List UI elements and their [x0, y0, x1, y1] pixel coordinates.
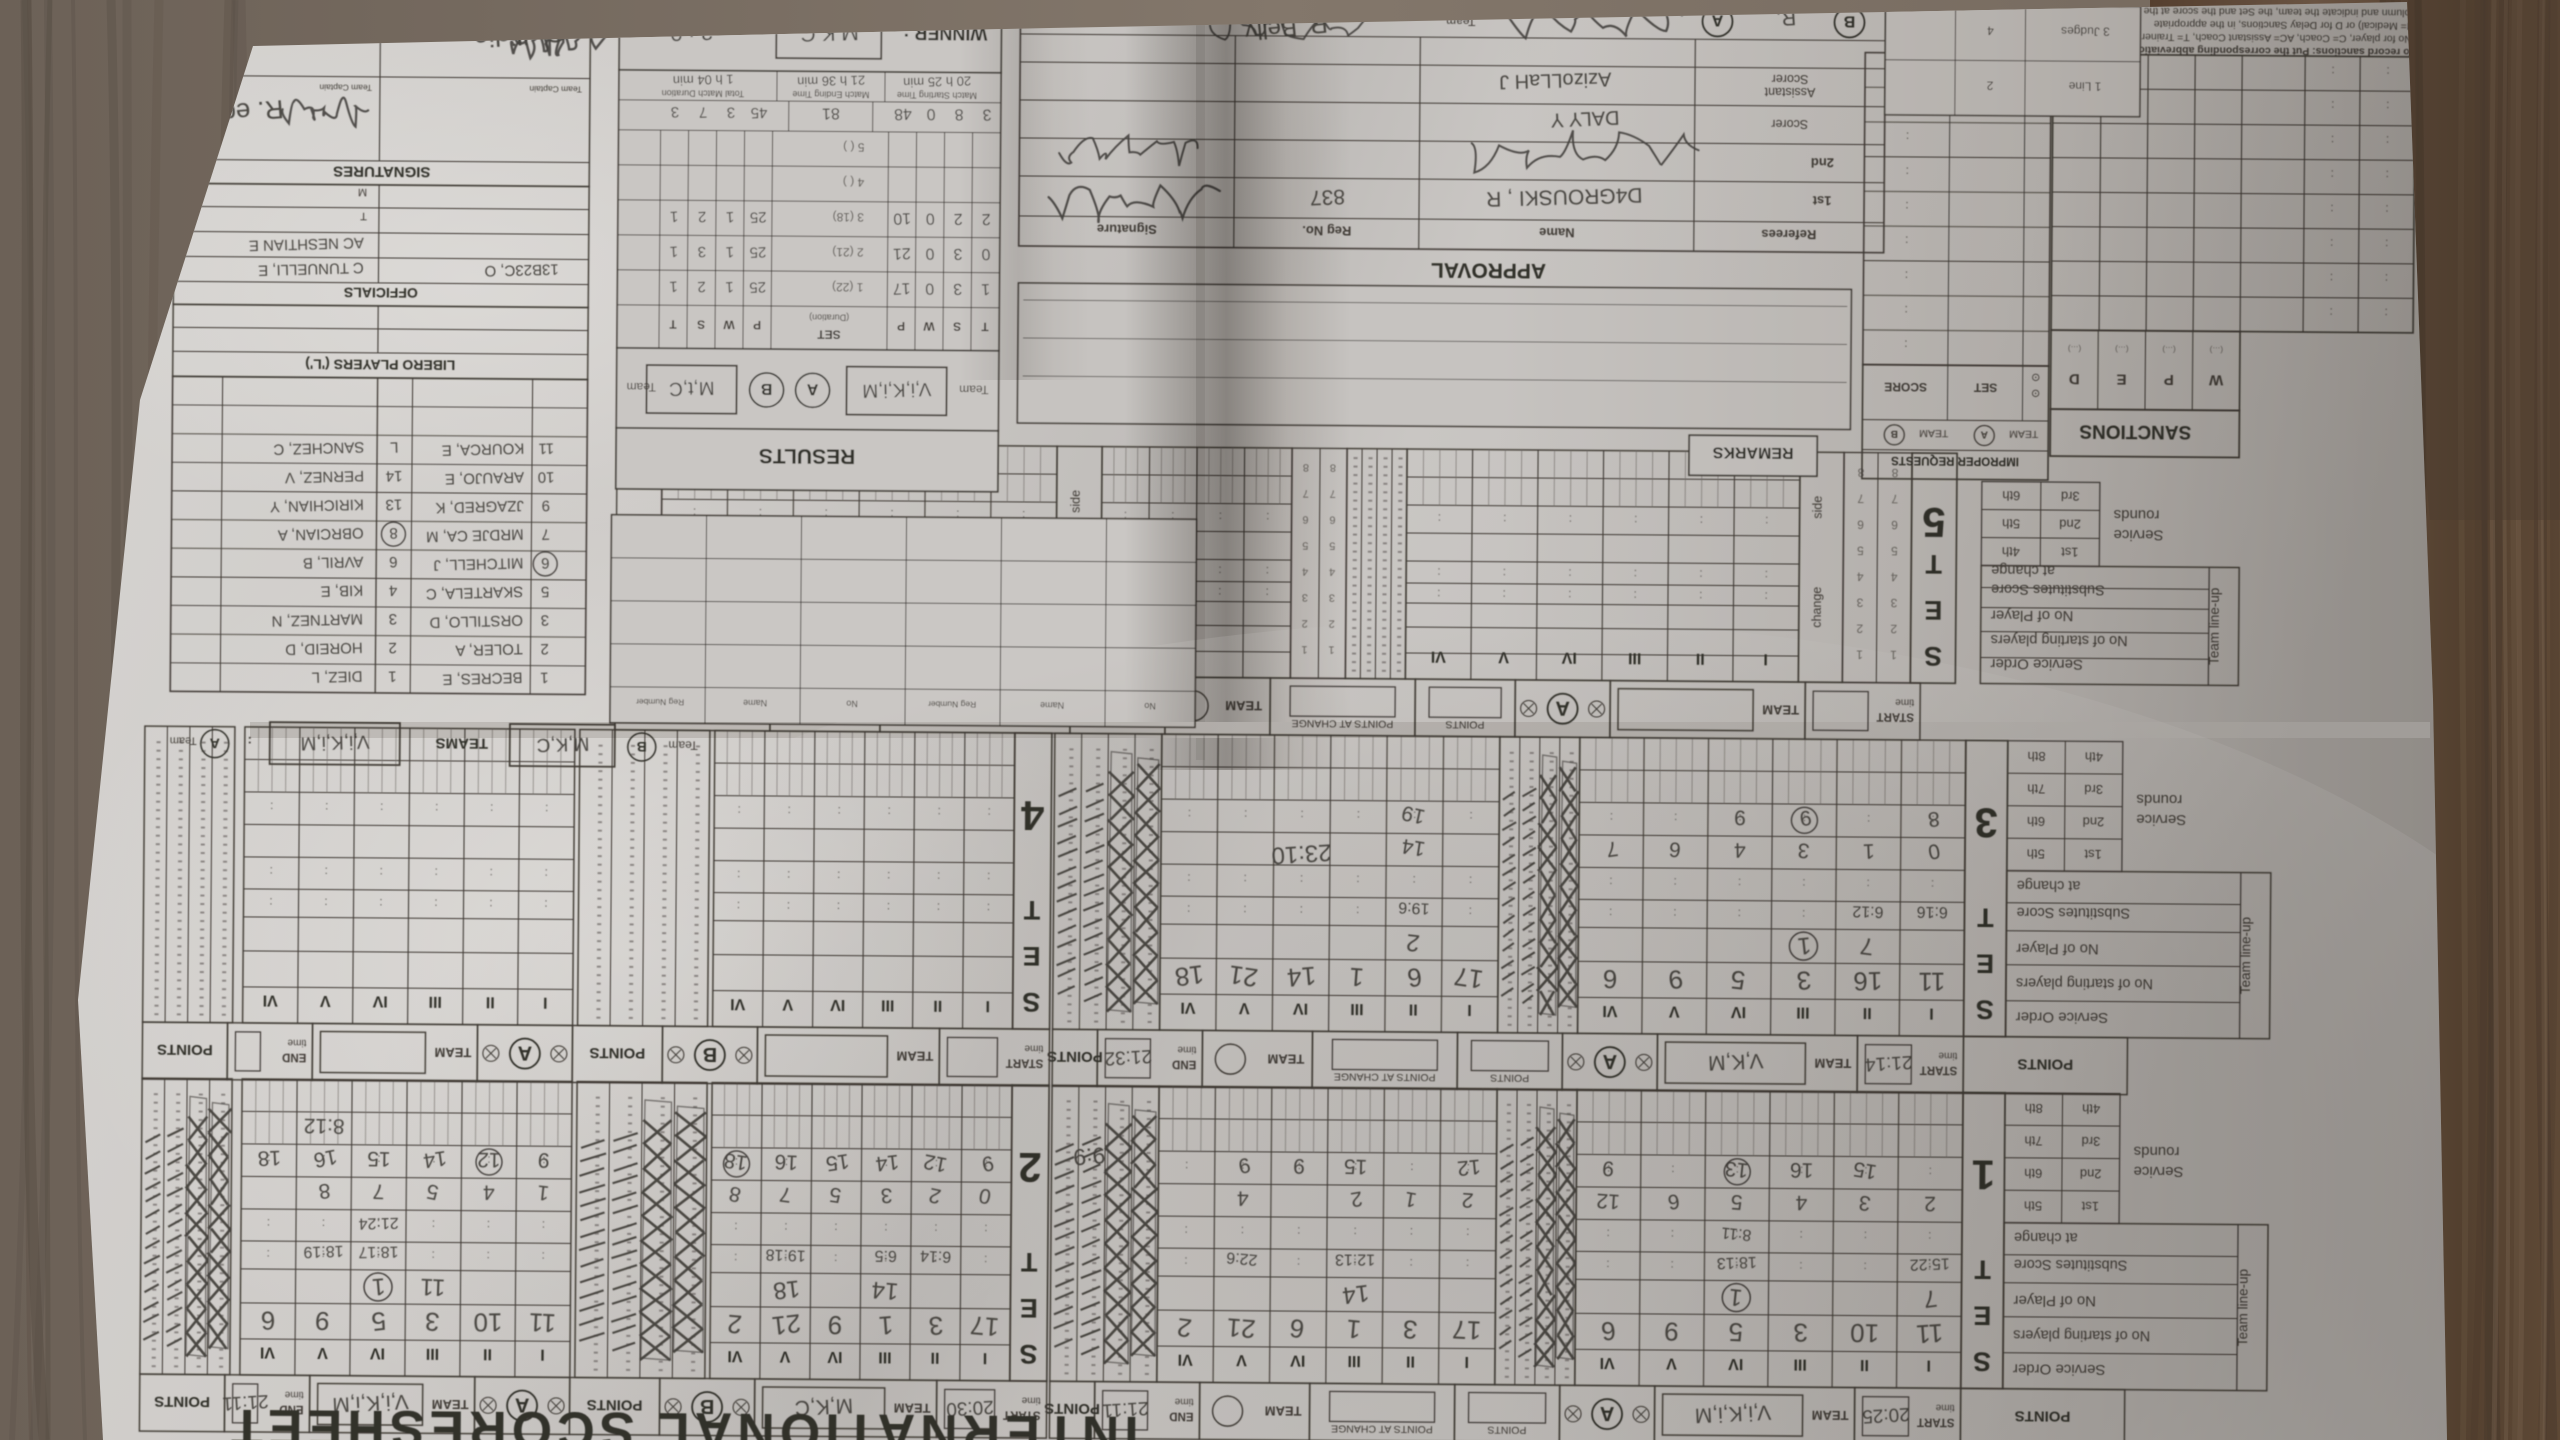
svg-text:5 ( ): 5 ( )	[843, 140, 864, 154]
svg-text:Team: Team	[959, 382, 988, 396]
svg-text:Match Ending Time: Match Ending Time	[792, 89, 869, 100]
svg-text:8: 8	[317, 1179, 331, 1203]
svg-text:T: T	[669, 317, 677, 331]
svg-text::: :	[267, 1247, 270, 1261]
svg-text:(Duration): (Duration)	[809, 312, 849, 322]
svg-text:Team Captain: Team Captain	[319, 82, 372, 92]
svg-text:18:19: 18:19	[303, 1242, 344, 1260]
svg-text:POINTS: POINTS	[154, 1393, 210, 1410]
svg-text::: :	[270, 864, 273, 878]
svg-text::: :	[489, 897, 492, 911]
svg-text::: :	[435, 801, 438, 815]
svg-text:BECRES, E: BECRES, E	[442, 669, 522, 688]
svg-text:B: B	[637, 739, 647, 755]
svg-text::: :	[325, 800, 328, 814]
svg-text:25: 25	[749, 278, 766, 296]
svg-text:4 ( ): 4 ( )	[843, 175, 864, 189]
svg-text:25: 25	[749, 208, 766, 226]
svg-text:1 h 04 min: 1 h 04 min	[673, 72, 734, 89]
svg-text:6: 6	[541, 554, 550, 571]
svg-text:P: P	[897, 319, 905, 333]
svg-text:1: 1	[669, 243, 678, 260]
svg-text::: :	[270, 799, 273, 813]
svg-text:IV: IV	[372, 992, 388, 1009]
svg-text:0: 0	[925, 280, 935, 297]
svg-text:3: 3	[670, 103, 679, 120]
svg-text:1: 1	[725, 243, 734, 260]
svg-text::: :	[379, 896, 382, 910]
svg-text:5: 5	[541, 583, 550, 600]
svg-text:Name: Name	[743, 698, 767, 708]
svg-text:7: 7	[698, 103, 707, 120]
svg-text::: :	[380, 865, 383, 879]
svg-text:8:12: 8:12	[303, 1114, 344, 1138]
svg-text:S: S	[953, 319, 961, 333]
svg-text:V: V	[317, 1344, 328, 1361]
svg-text::: :	[1438, 511, 1441, 525]
svg-text::: :	[435, 866, 438, 880]
svg-text:1: 1	[725, 278, 734, 295]
svg-text:13B23C, O: 13B23C, O	[484, 260, 559, 279]
svg-text:M,t,C: M,t,C	[669, 377, 715, 399]
svg-text:LIBERO PLAYERS ('L'): LIBERO PLAYERS ('L')	[305, 356, 455, 373]
svg-text:45: 45	[750, 104, 767, 122]
svg-text:2: 2	[388, 639, 397, 656]
svg-text:SKARTELA, C: SKARTELA, C	[426, 583, 524, 603]
svg-text::: :	[490, 866, 493, 880]
svg-text:4: 4	[389, 582, 398, 599]
svg-text::: :	[380, 800, 383, 814]
svg-text:1: 1	[388, 667, 397, 684]
svg-text:9: 9	[541, 497, 550, 514]
svg-text:Reg Number: Reg Number	[636, 697, 684, 707]
svg-text:S: S	[697, 317, 705, 331]
svg-text:2: 2	[698, 208, 707, 225]
svg-text:1 (22): 1 (22)	[832, 280, 863, 294]
svg-text:2: 2	[540, 640, 549, 657]
svg-text:END: END	[282, 1051, 306, 1063]
svg-text:81: 81	[822, 104, 840, 121]
svg-text:ORSTILLO, D: ORSTILLO, D	[429, 611, 523, 631]
svg-text::: :	[1437, 565, 1440, 579]
svg-text:A: A	[210, 736, 220, 752]
svg-text:25: 25	[749, 243, 766, 261]
svg-text:TOLER, A: TOLER, A	[455, 640, 523, 659]
svg-text:V: V	[320, 992, 331, 1009]
svg-text:SANCHEZ, C: SANCHEZ, C	[273, 438, 364, 457]
svg-text::: :	[269, 895, 272, 909]
svg-text:B: B	[761, 380, 773, 397]
svg-text:1: 1	[726, 208, 735, 225]
svg-text:1: 1	[670, 208, 679, 225]
svg-text:C TUNUELLI, E: C TUNUELLI, E	[258, 259, 364, 279]
svg-text::: :	[1437, 587, 1440, 601]
svg-text:Team: Team	[668, 738, 697, 752]
svg-text:Team: Team	[170, 734, 197, 746]
svg-text:21: 21	[893, 244, 912, 262]
svg-text::: :	[490, 801, 493, 815]
svg-text:11: 11	[538, 439, 554, 456]
svg-text:ARAUJO, E: ARAUJO, E	[445, 468, 525, 487]
svg-text:KIB, E: KIB, E	[320, 581, 363, 599]
svg-text:Team Captain: Team Captain	[529, 84, 582, 94]
svg-text:9: 9	[314, 1306, 330, 1337]
svg-text:2 (21): 2 (21)	[832, 245, 863, 259]
svg-text:No: No	[846, 699, 858, 709]
svg-text:OBRCIAN, A: OBRCIAN, A	[278, 524, 364, 543]
svg-text:3: 3	[697, 243, 706, 260]
svg-text:6: 6	[260, 1305, 275, 1335]
svg-text:48: 48	[894, 105, 913, 123]
svg-text::: :	[545, 802, 548, 816]
svg-text:3: 3	[726, 103, 735, 120]
svg-text:3 (18): 3 (18)	[833, 210, 864, 224]
svg-text:1: 1	[669, 278, 678, 295]
svg-text:time: time	[284, 1389, 303, 1400]
svg-text:1: 1	[540, 669, 549, 686]
svg-text:AVRIL, B: AVRIL, B	[303, 553, 364, 572]
svg-text:PERNEZ, V: PERNEZ, V	[285, 467, 365, 486]
svg-text:JZAGRED, K: JZAGRED, K	[435, 497, 524, 516]
svg-text:13: 13	[385, 496, 402, 513]
svg-text:VI: VI	[260, 1344, 275, 1361]
svg-text:MITCHELL, J: MITCHELL, J	[433, 554, 523, 573]
svg-text:OFFICIALS: OFFICIALS	[344, 285, 418, 302]
svg-text:POINTS: POINTS	[157, 1041, 213, 1058]
svg-text:14: 14	[385, 467, 402, 484]
svg-text:3: 3	[541, 611, 550, 628]
svg-text:7: 7	[541, 525, 550, 542]
svg-text:0: 0	[925, 210, 935, 227]
svg-text:HOREID, D: HOREID, D	[285, 639, 363, 658]
svg-text:KOURCA, E: KOURCA, E	[442, 439, 525, 458]
svg-text:0: 0	[925, 245, 935, 262]
svg-text:MRDJE CA, M: MRDJE CA, M	[426, 525, 524, 545]
svg-text:L: L	[390, 438, 399, 455]
svg-text:8: 8	[389, 524, 398, 541]
svg-text:0: 0	[926, 105, 936, 122]
svg-text:DIEZ, L: DIEZ, L	[311, 667, 362, 685]
svg-text::: :	[324, 896, 327, 910]
svg-text::: :	[267, 1216, 270, 1230]
svg-text:6: 6	[389, 553, 398, 570]
svg-text:time: time	[287, 1037, 306, 1048]
svg-text:RESULTS: RESULTS	[759, 444, 856, 468]
svg-text:T: T	[360, 210, 367, 222]
svg-text:Team: Team	[627, 380, 656, 394]
svg-text::: :	[322, 1217, 325, 1231]
svg-text:W: W	[923, 319, 935, 333]
svg-text:A: A	[806, 380, 818, 397]
svg-text:10: 10	[537, 468, 554, 485]
svg-text:Total Match Duration: Total Match Duration	[662, 88, 745, 99]
svg-text:16: 16	[312, 1144, 339, 1171]
svg-text:M: M	[358, 186, 367, 198]
svg-text:21 h 36 min: 21 h 36 min	[797, 73, 865, 90]
svg-text:17: 17	[892, 279, 911, 297]
svg-text:10: 10	[893, 209, 912, 227]
svg-text:SIGNATURES: SIGNATURES	[333, 163, 430, 181]
svg-text:3: 3	[389, 610, 398, 627]
svg-text:V,i,K,i,M: V,i,K,i,M	[862, 378, 932, 401]
svg-text:MARTNEZ, N: MARTNEZ, N	[271, 610, 363, 629]
svg-text:P: P	[753, 318, 761, 332]
svg-text:IV: IV	[370, 1344, 386, 1361]
svg-text:AC NESHTIAN E: AC NESHTIAN E	[249, 234, 364, 254]
svg-text:SET: SET	[817, 327, 841, 341]
svg-text:KIRICHIAN, Y: KIRICHIAN, Y	[270, 495, 364, 515]
svg-text:2: 2	[697, 278, 706, 295]
svg-text::: :	[434, 896, 437, 910]
svg-text:side: side	[1069, 490, 1083, 513]
svg-text:18: 18	[257, 1146, 281, 1170]
svg-text:W: W	[723, 318, 735, 332]
svg-text:VI: VI	[263, 992, 278, 1009]
svg-text::: :	[325, 865, 328, 879]
